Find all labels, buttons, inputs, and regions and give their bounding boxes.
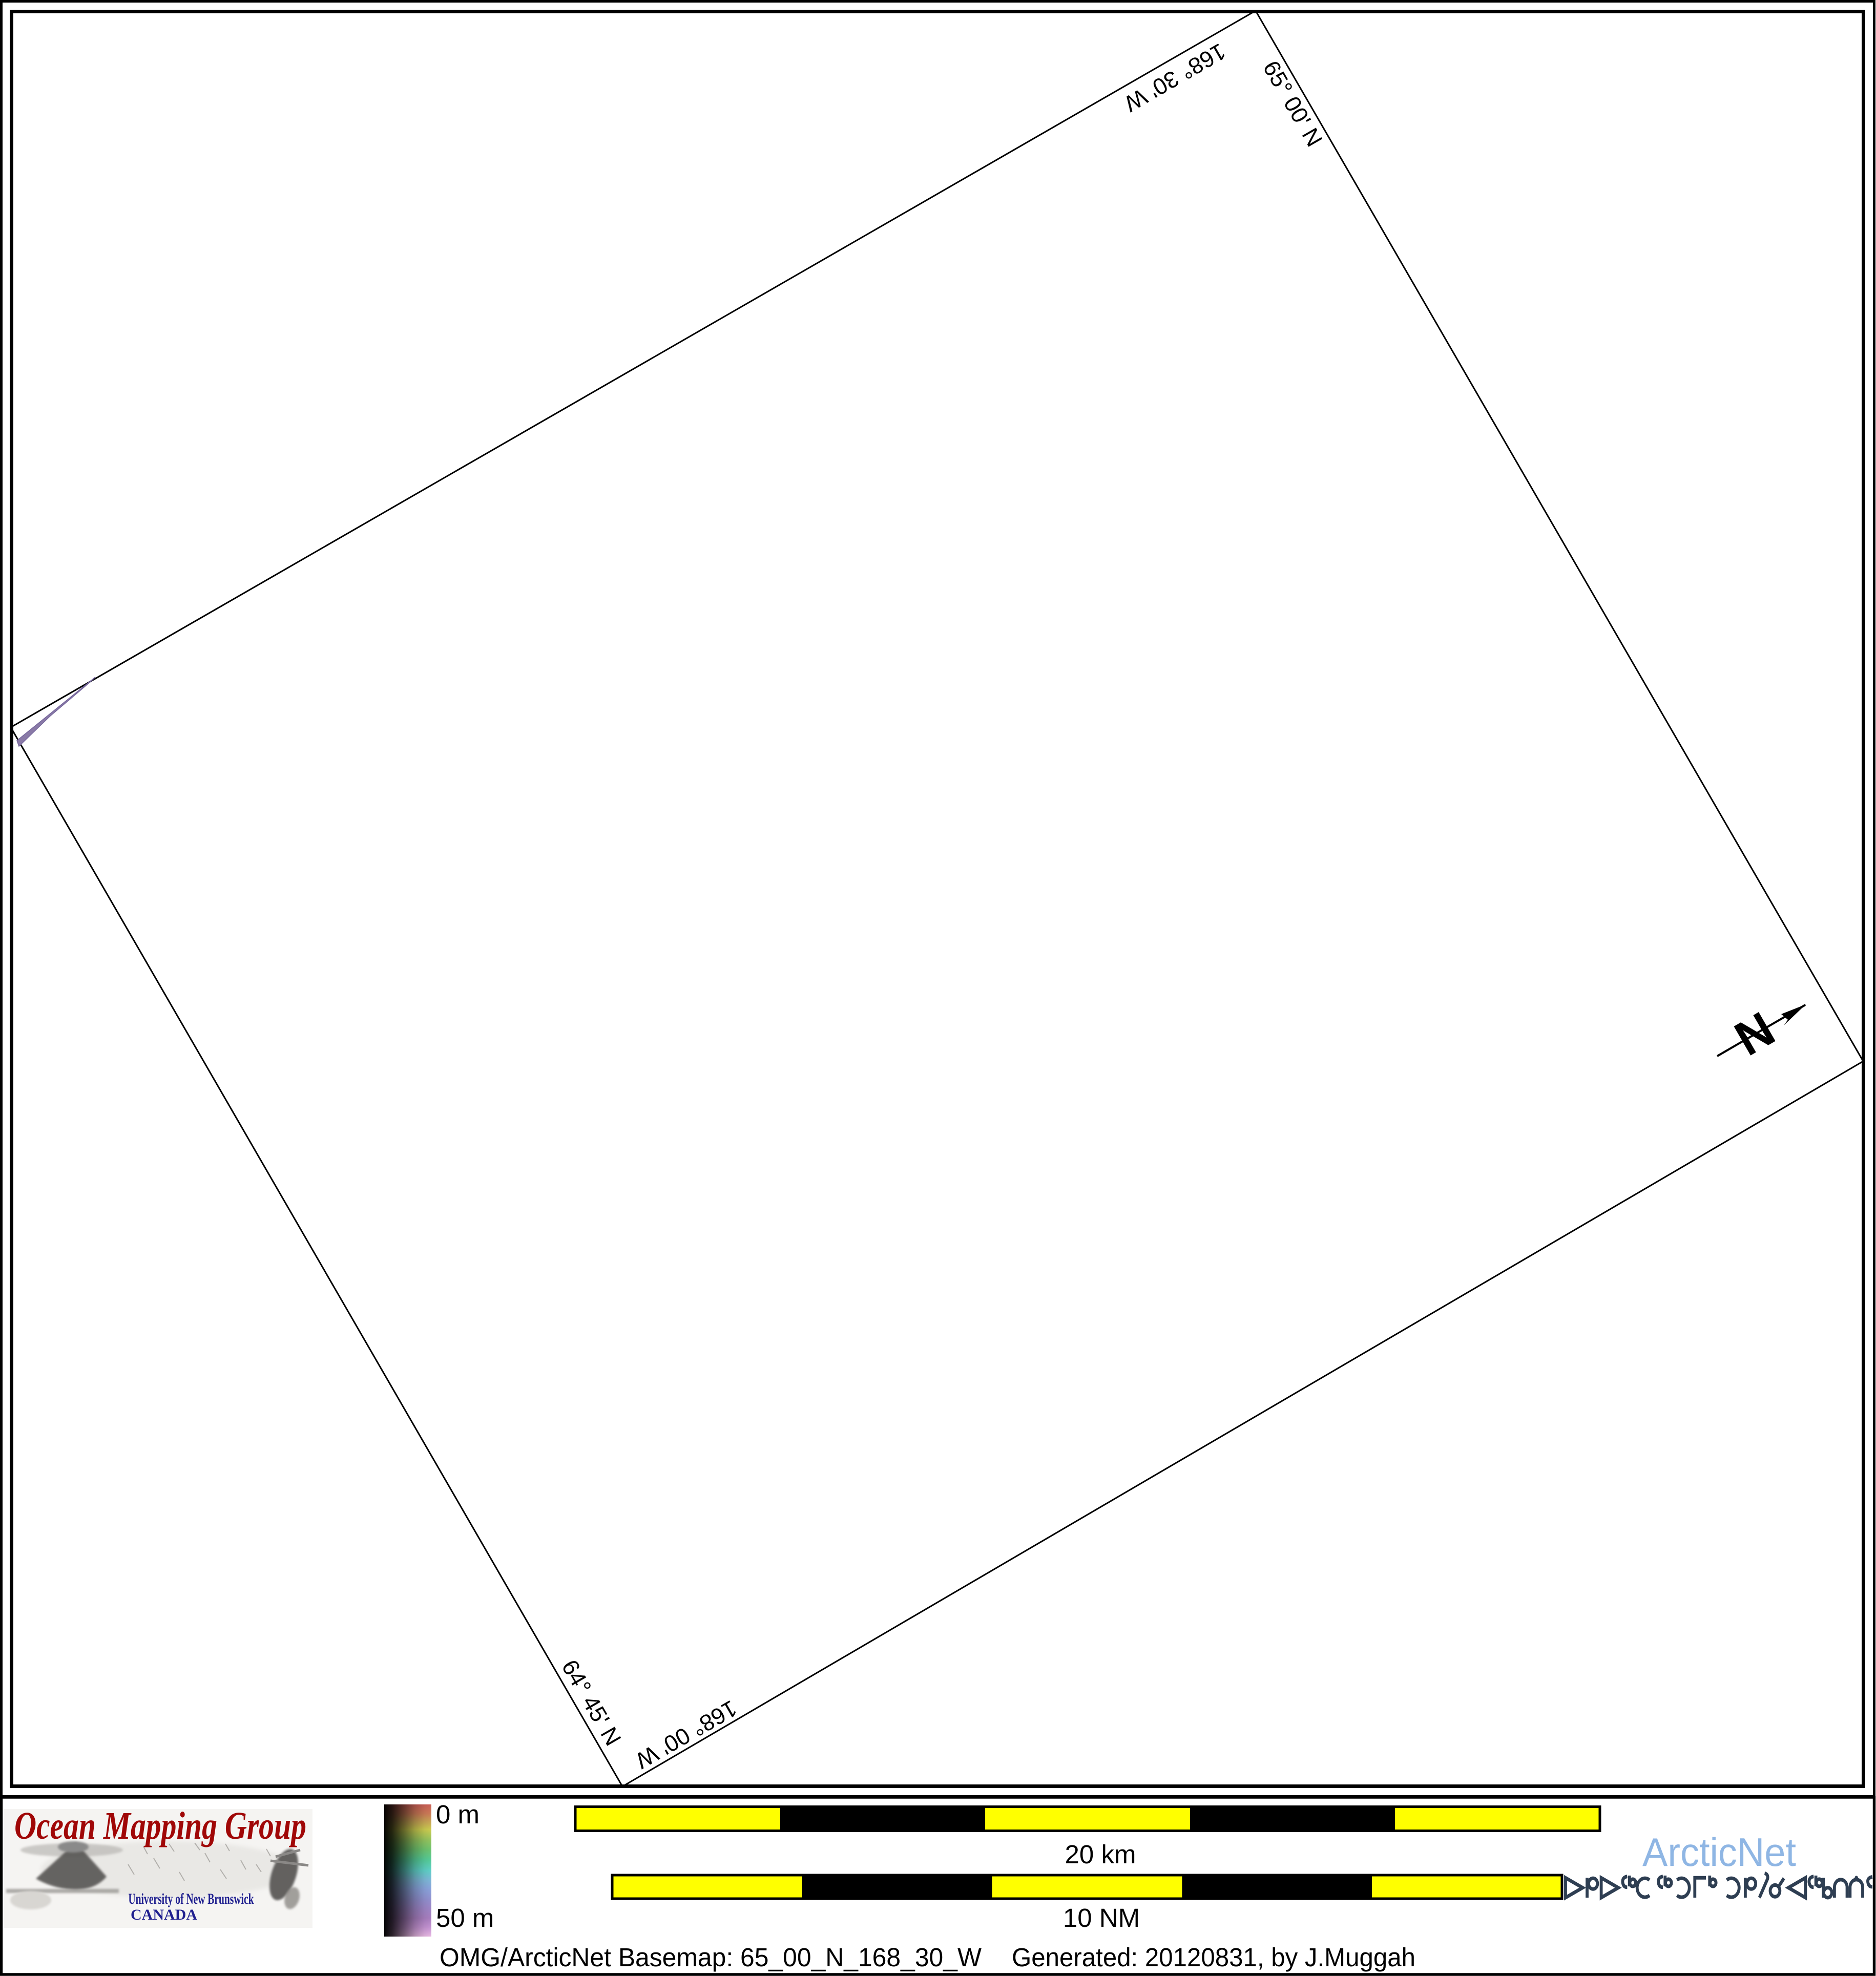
svg-text:20 km: 20 km <box>1065 1840 1136 1869</box>
svg-text:0 m: 0 m <box>436 1800 480 1829</box>
svg-text:Generated: 20120831, by J.Mugg: Generated: 20120831, by J.Muggah <box>1012 1943 1415 1972</box>
svg-text:ArcticNet: ArcticNet <box>1642 1830 1796 1875</box>
svg-text:OMG/ArcticNet Basemap: 65_00_N: OMG/ArcticNet Basemap: 65_00_N_168_30_W <box>440 1943 982 1972</box>
svg-text:Ocean Mapping Group: Ocean Mapping Group <box>14 1804 306 1847</box>
svg-text:University of New Brunswick: University of New Brunswick <box>129 1890 254 1907</box>
svg-text:50 m: 50 m <box>436 1903 494 1932</box>
svg-text:CANADA: CANADA <box>131 1906 197 1923</box>
svg-text:10 NM: 10 NM <box>1063 1903 1140 1932</box>
